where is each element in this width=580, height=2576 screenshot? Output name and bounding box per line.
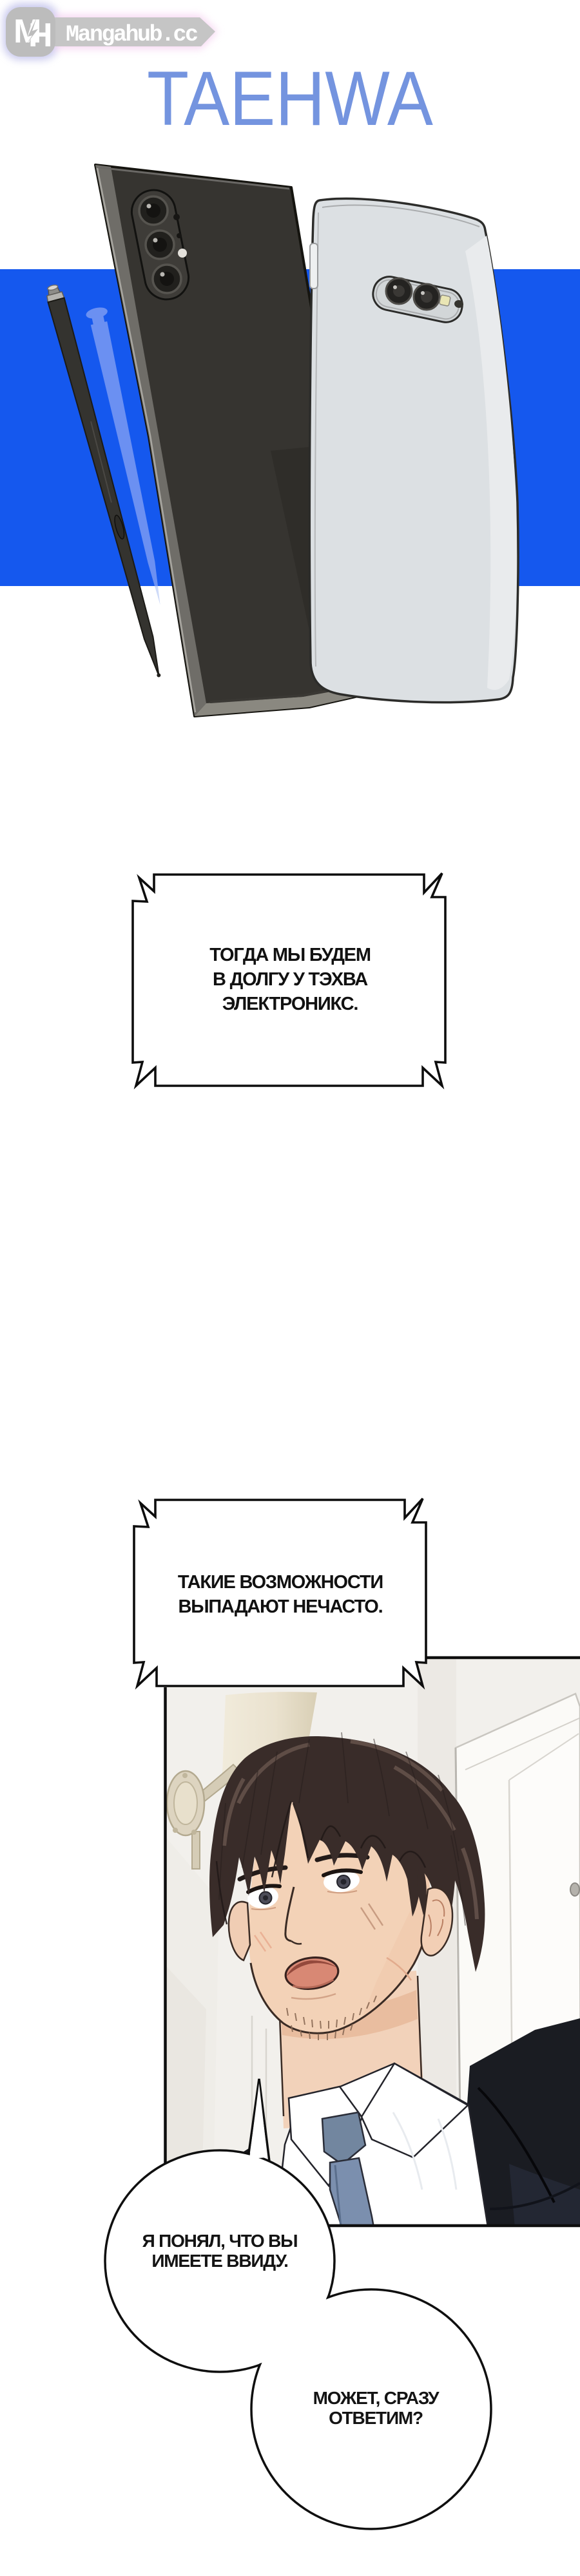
svg-text:Mangahub.cc: Mangahub.cc: [66, 22, 197, 48]
